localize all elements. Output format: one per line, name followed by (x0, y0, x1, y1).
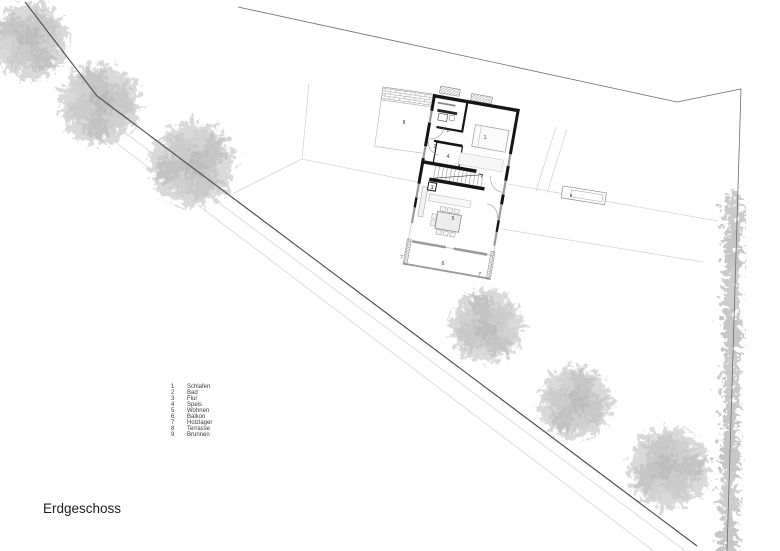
hedge (715, 186, 738, 551)
legend-label: Brunnen (187, 432, 210, 438)
room-label-schlafen: 1 (484, 135, 487, 141)
room-label-holzlager-left: 7 (399, 255, 403, 261)
drawing-title: Erdgeschoss (43, 501, 121, 516)
bath-sink (438, 113, 448, 121)
tree (607, 415, 716, 524)
bath-fixture (449, 115, 455, 121)
site-plan-page: 3 7 7 8 2 2 1 4 5 6 9 1Schlafen 2Bad 3Fl… (0, 0, 780, 551)
room-label-balkon: 6 (442, 261, 445, 267)
well (561, 186, 606, 205)
tree (443, 286, 536, 379)
legend-num: 9 (171, 432, 187, 438)
tree (532, 351, 625, 444)
tree (145, 107, 252, 214)
dining-table (435, 211, 462, 232)
room-label-bad: 2 (447, 128, 450, 134)
room-label-terrasse: 8 (403, 120, 406, 126)
legend-item: 9Brunnen (171, 432, 212, 438)
room-label-wohnen: 5 (452, 216, 455, 222)
canopy (439, 86, 460, 96)
legend: 1Schlafen 2Bad 3Flur 4Speis 5Wohnen 6Bal… (171, 384, 212, 438)
site-plan-drawing: 3 7 7 8 2 2 1 4 5 6 9 (0, 0, 780, 551)
room-label-speis: 4 (447, 154, 450, 160)
trees (0, 0, 717, 525)
room-label-bad2: 2 (434, 144, 437, 150)
